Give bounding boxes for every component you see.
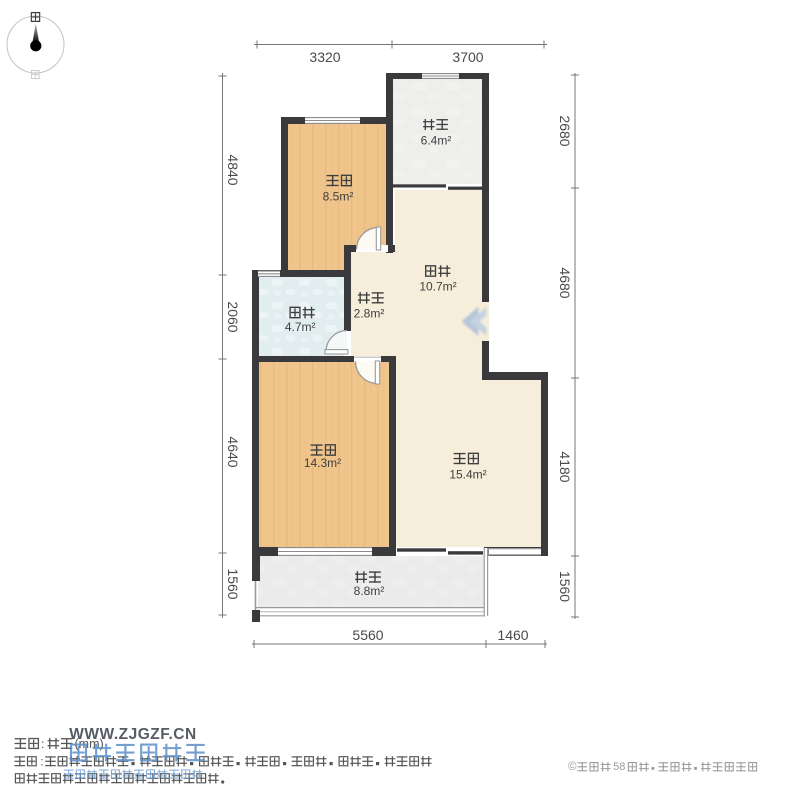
svg-text:1460: 1460 xyxy=(497,627,528,643)
svg-text:58: 58 xyxy=(613,761,625,773)
svg-text:10.7m²: 10.7m² xyxy=(419,280,456,294)
svg-text:WWW.ZJGZF.CN: WWW.ZJGZF.CN xyxy=(69,726,196,743)
svg-text:2680: 2680 xyxy=(557,115,573,146)
svg-text:1560: 1560 xyxy=(225,568,241,599)
svg-text:15.4m²: 15.4m² xyxy=(449,468,486,482)
svg-text:8.8m²: 8.8m² xyxy=(354,584,385,598)
svg-text:4180: 4180 xyxy=(557,451,573,482)
svg-text:2.8m²: 2.8m² xyxy=(354,307,385,321)
svg-text:14.3m²: 14.3m² xyxy=(304,456,341,470)
svg-text::: : xyxy=(40,755,43,769)
svg-text:4.7m²: 4.7m² xyxy=(285,320,316,334)
svg-text:©: © xyxy=(568,761,577,773)
svg-text:5560: 5560 xyxy=(352,627,383,643)
svg-text:4680: 4680 xyxy=(557,267,573,298)
svg-text:2060: 2060 xyxy=(225,301,241,332)
svg-text:4640: 4640 xyxy=(225,436,241,467)
svg-text:6.4m²: 6.4m² xyxy=(421,134,452,148)
svg-text:8.5m²: 8.5m² xyxy=(323,190,354,204)
svg-text:4840: 4840 xyxy=(225,154,241,185)
svg-text:3700: 3700 xyxy=(452,49,483,65)
svg-text:1560: 1560 xyxy=(557,571,573,602)
svg-text:3320: 3320 xyxy=(309,49,340,65)
svg-text::: : xyxy=(41,737,44,751)
